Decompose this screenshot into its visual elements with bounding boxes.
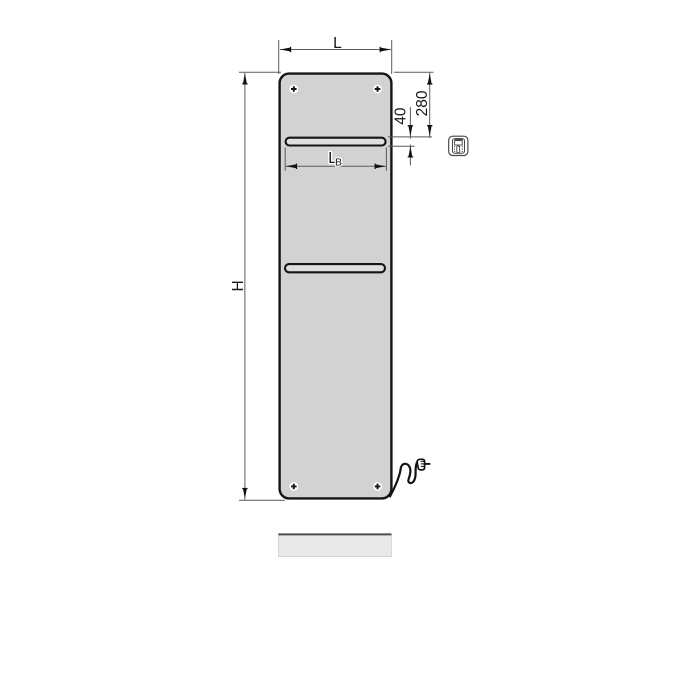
- svg-text:280: 280: [414, 90, 431, 116]
- svg-text:40: 40: [392, 107, 409, 125]
- svg-text:H: H: [230, 280, 247, 291]
- svg-text:B: B: [335, 156, 342, 168]
- svg-text:L: L: [333, 35, 342, 52]
